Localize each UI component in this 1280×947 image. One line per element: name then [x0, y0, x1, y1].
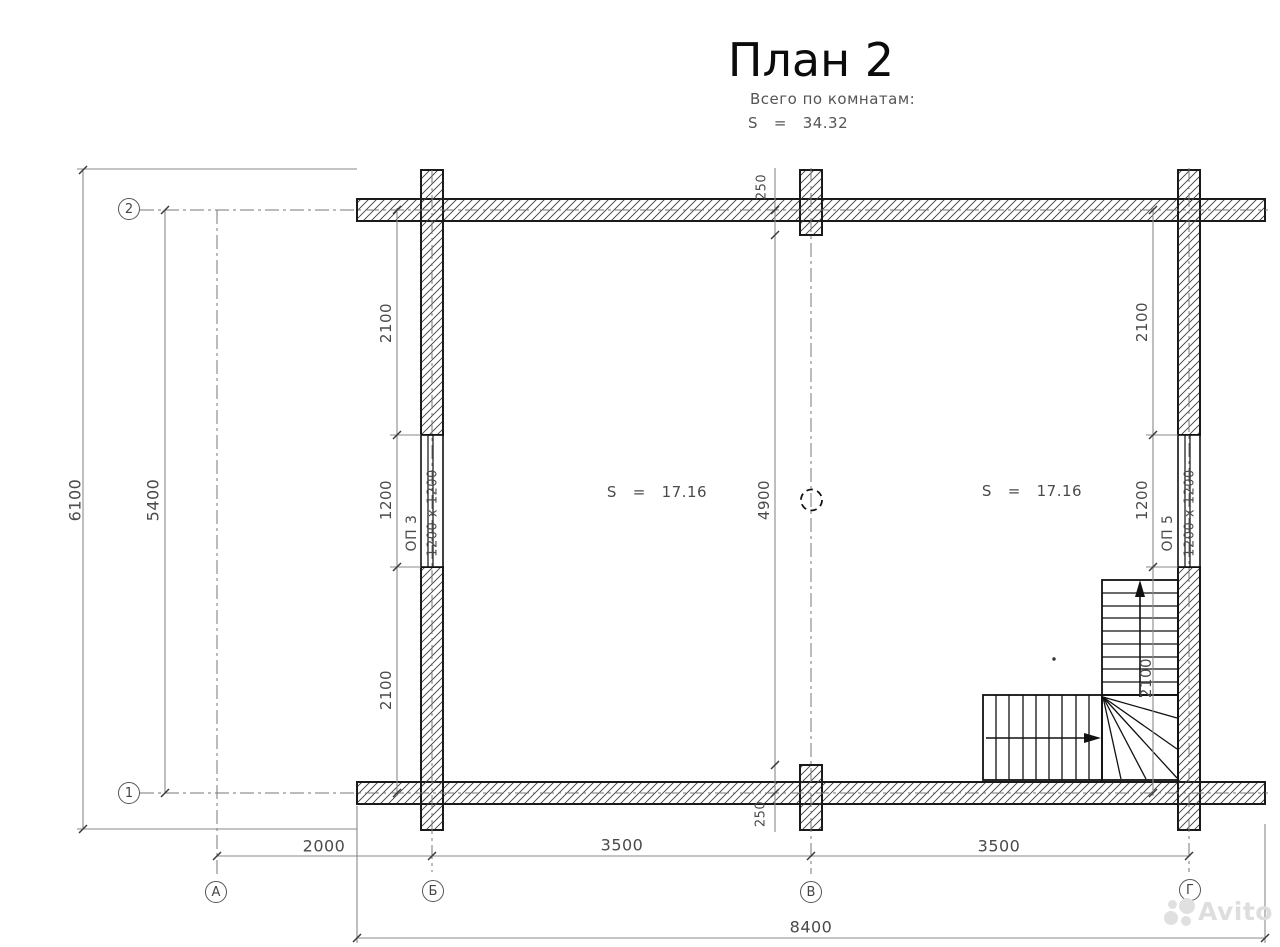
window-left-size: 1200 x 1200 — [426, 469, 441, 557]
window-right-label: ОП 5 — [1160, 515, 1176, 552]
dim-bottom-b-v: 3500 — [601, 836, 644, 855]
axis-row-1-label: 1 — [125, 786, 133, 801]
dim-bottom-a-b: 2000 — [303, 837, 346, 856]
avito-logo-icon — [1168, 900, 1177, 909]
axis-col-a: А — [205, 881, 227, 903]
axis-row-2: 2 — [118, 198, 140, 220]
dim-center-top: 250 — [755, 174, 770, 200]
dim-center-bottom: 250 — [754, 801, 769, 827]
dim-bottom-v-g: 3500 — [978, 837, 1021, 856]
stray-dot — [1052, 657, 1055, 660]
avito-logo-icon — [1179, 898, 1195, 914]
axis-row-2-label: 2 — [125, 202, 133, 217]
dim-right-window: 1200 — [1133, 480, 1151, 520]
dim-outer-height: 6100 — [66, 479, 85, 522]
dim-right-top: 2100 — [1133, 302, 1151, 342]
dim-axis-height: 5400 — [144, 479, 163, 522]
summary-caption: Всего по комнатам: — [750, 90, 915, 108]
dim-left-bottom: 2100 — [377, 670, 395, 710]
dim-right-bottom: 2100 — [1137, 658, 1155, 698]
dim-left-window: 1200 — [377, 480, 395, 520]
page-title: План 2 — [728, 33, 894, 87]
window-left-label: ОП 3 — [404, 515, 420, 552]
summary-total-area: S = 34.32 — [748, 114, 848, 132]
plan-drawing — [0, 0, 1280, 947]
axis-col-v-label: В — [807, 885, 816, 900]
dim-left-top: 2100 — [377, 303, 395, 343]
stair-direction-arrows — [986, 580, 1145, 743]
axis-col-v: В — [800, 881, 822, 903]
room-area-right: S = 17.16 — [982, 482, 1082, 500]
avito-logo-icon — [1164, 911, 1178, 925]
window-right-size: 1200 x 1200 — [1183, 469, 1198, 557]
dim-outer-width: 8400 — [790, 918, 833, 937]
room-area-left: S = 17.16 — [607, 483, 707, 501]
axis-row-1: 1 — [118, 782, 140, 804]
axis-col-b-label: Б — [429, 884, 438, 899]
avito-watermark-text: Avito — [1198, 897, 1273, 926]
dimension-lines — [77, 168, 1265, 943]
axis-lines — [140, 168, 1268, 874]
dimension-ticks — [79, 166, 1269, 942]
dim-center-room: 4900 — [755, 480, 773, 520]
avito-watermark: Avito — [1162, 896, 1262, 930]
floor-plan-page: План 2 Всего по комнатам: S = 34.32 S = … — [0, 0, 1280, 947]
axis-col-b: Б — [422, 880, 444, 902]
avito-logo-icon — [1181, 916, 1191, 926]
axis-col-a-label: А — [212, 885, 221, 900]
